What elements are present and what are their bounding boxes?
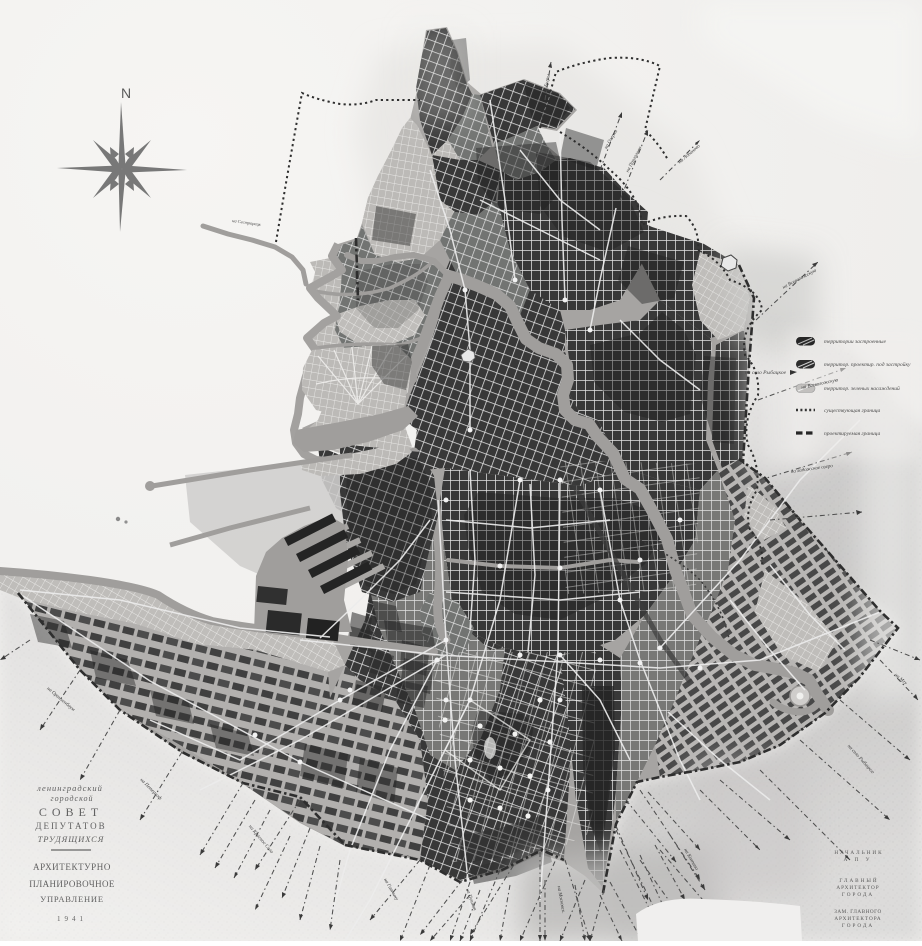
svg-text:территор. проектир. под застро: территор. проектир. под застройку bbox=[824, 361, 911, 368]
svg-text:УПРАВЛЕНИЕ: УПРАВЛЕНИЕ bbox=[40, 894, 104, 904]
svg-text:НАЧАЛЬНИК: НАЧАЛЬНИК bbox=[834, 850, 883, 856]
svg-text:N: N bbox=[121, 85, 131, 101]
svg-text:ЗАМ. ГЛАВНОГО: ЗАМ. ГЛАВНОГО bbox=[834, 909, 882, 915]
svg-text:территор. зеленых насаждений: территор. зеленых насаждений bbox=[824, 385, 900, 392]
svg-text:АРХИТЕКТОРА: АРХИТЕКТОРА bbox=[834, 916, 881, 922]
svg-text:АРХИТЕКТОР: АРХИТЕКТОР bbox=[836, 885, 879, 891]
svg-text:ДЕПУТАТОВ: ДЕПУТАТОВ bbox=[35, 821, 106, 831]
svg-text:проектируемая граница: проектируемая граница bbox=[824, 431, 880, 437]
svg-text:ГОРОДА: ГОРОДА bbox=[842, 892, 874, 898]
svg-text:существующая граница: существующая граница bbox=[824, 408, 881, 414]
svg-text:ГЛАВНЫЙ: ГЛАВНЫЙ bbox=[839, 876, 878, 884]
svg-text:СОВЕТ: СОВЕТ bbox=[39, 805, 103, 819]
svg-text:А П У: А П У bbox=[844, 857, 873, 863]
svg-text:ГОРОДА: ГОРОДА bbox=[842, 923, 874, 929]
svg-text:ТРУДЯЩИХСЯ: ТРУДЯЩИХСЯ bbox=[38, 834, 105, 844]
svg-text:на село Рыбацкое: на село Рыбацкое bbox=[745, 369, 787, 376]
svg-text:ленинградский: ленинградский bbox=[36, 783, 103, 793]
svg-text:ПЛАНИРОВОЧНОЕ: ПЛАНИРОВОЧНОЕ bbox=[29, 879, 115, 889]
svg-text:1941: 1941 bbox=[57, 915, 87, 923]
svg-text:территории застроенные: территории застроенные bbox=[824, 339, 886, 345]
svg-text:АРХИТЕКТУРНО: АРХИТЕКТУРНО bbox=[33, 862, 111, 872]
svg-text:городской: городской bbox=[50, 794, 93, 803]
